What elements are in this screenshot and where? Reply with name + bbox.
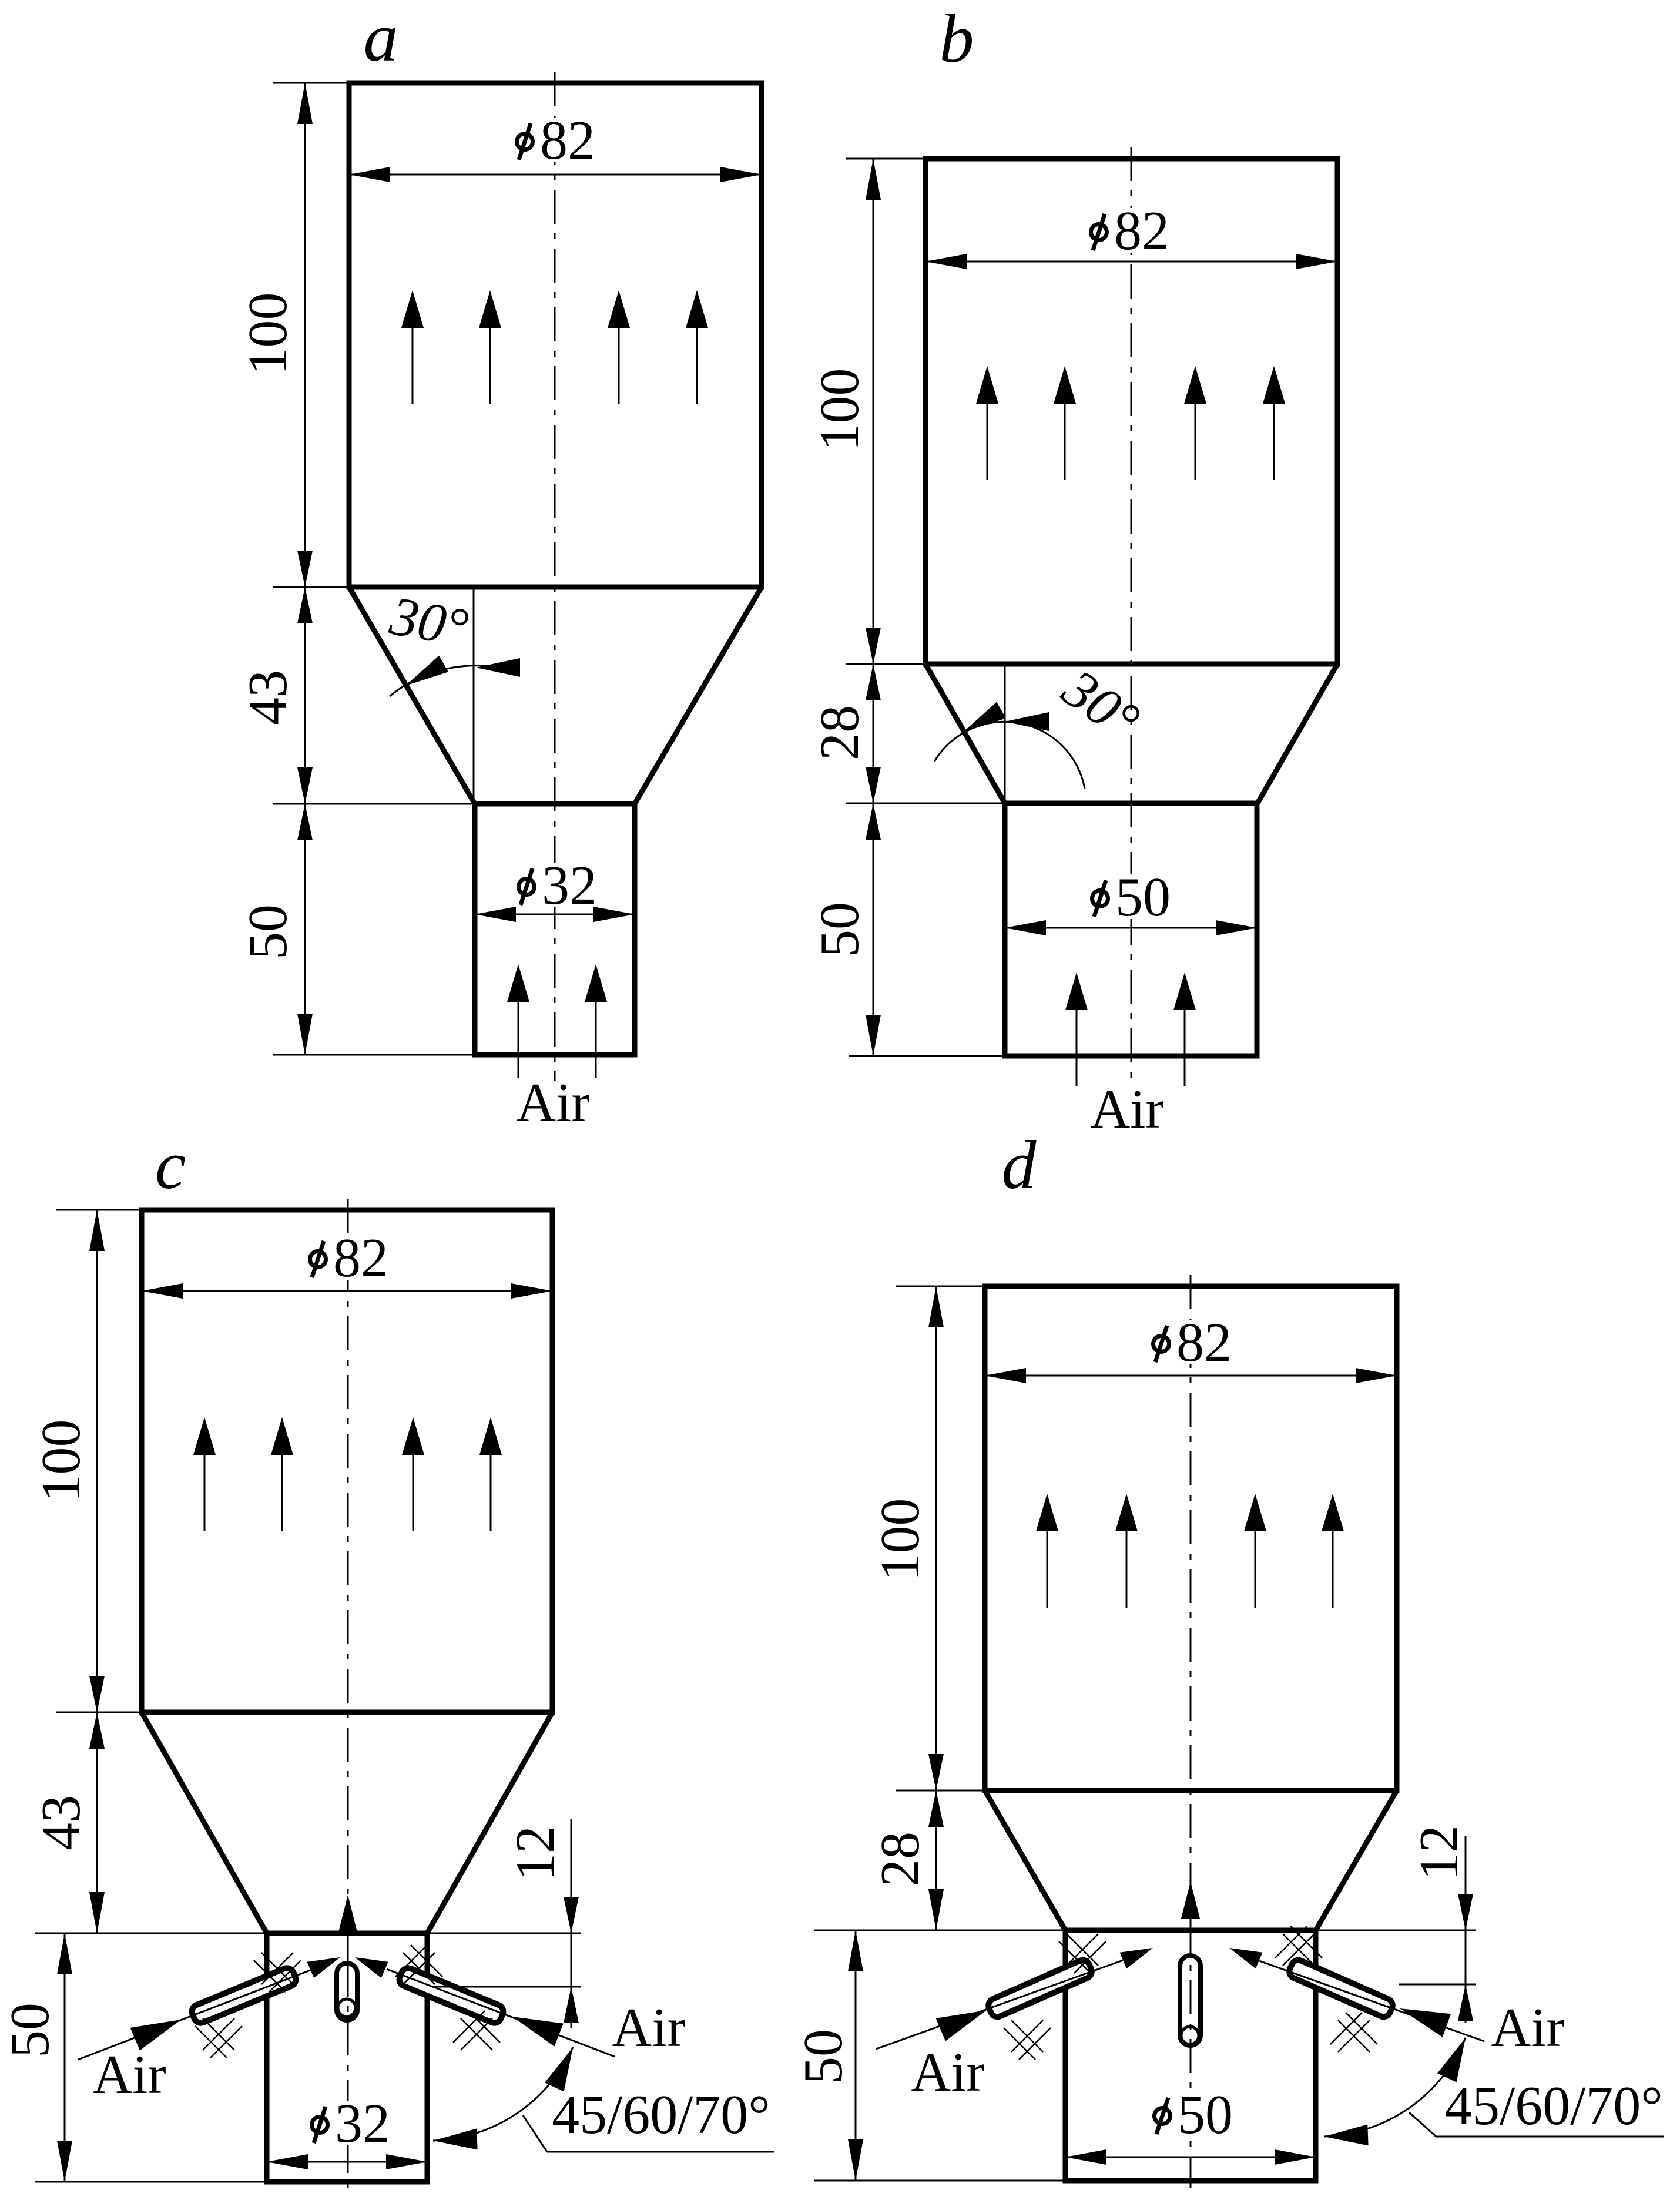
svg-text:12: 12 [1409, 1825, 1470, 1880]
svg-text:c: c [155, 1126, 186, 1203]
svg-text:45/60/70°: 45/60/70° [552, 2084, 770, 2145]
svg-text:d: d [1002, 1126, 1037, 1203]
svg-text:100: 100 [870, 1498, 931, 1581]
svg-text:100: 100 [237, 293, 299, 375]
svg-text:32: 32 [335, 2093, 390, 2154]
svg-text:82: 82 [1114, 200, 1169, 261]
svg-text:50: 50 [809, 902, 870, 957]
svg-text:a: a [364, 0, 398, 76]
svg-text:43: 43 [237, 670, 299, 725]
svg-text:50: 50 [237, 904, 299, 960]
svg-text:82: 82 [1176, 1312, 1232, 1373]
svg-text:100: 100 [809, 368, 870, 451]
svg-text:Air: Air [612, 1997, 685, 2058]
svg-text:12: 12 [505, 1826, 566, 1881]
svg-text:82: 82 [333, 1228, 388, 1289]
svg-text:28: 28 [870, 1832, 931, 1887]
svg-text:b: b [940, 0, 974, 77]
svg-text:Air: Air [92, 2044, 166, 2105]
svg-text:43: 43 [31, 1795, 92, 1850]
svg-text:50: 50 [793, 2029, 854, 2084]
svg-text:50: 50 [1115, 867, 1171, 928]
svg-text:32: 32 [542, 855, 597, 916]
svg-text:45/60/70°: 45/60/70° [1444, 2075, 1663, 2137]
svg-text:Air: Air [911, 2042, 984, 2103]
svg-text:28: 28 [809, 705, 870, 760]
svg-text:Air: Air [1491, 1997, 1564, 2058]
svg-text:Air: Air [1090, 1079, 1163, 1140]
svg-text:50: 50 [0, 2003, 61, 2058]
svg-text:82: 82 [540, 110, 595, 171]
svg-text:100: 100 [31, 1420, 92, 1503]
svg-text:Air: Air [516, 1072, 589, 1133]
svg-text:50: 50 [1178, 2084, 1233, 2145]
